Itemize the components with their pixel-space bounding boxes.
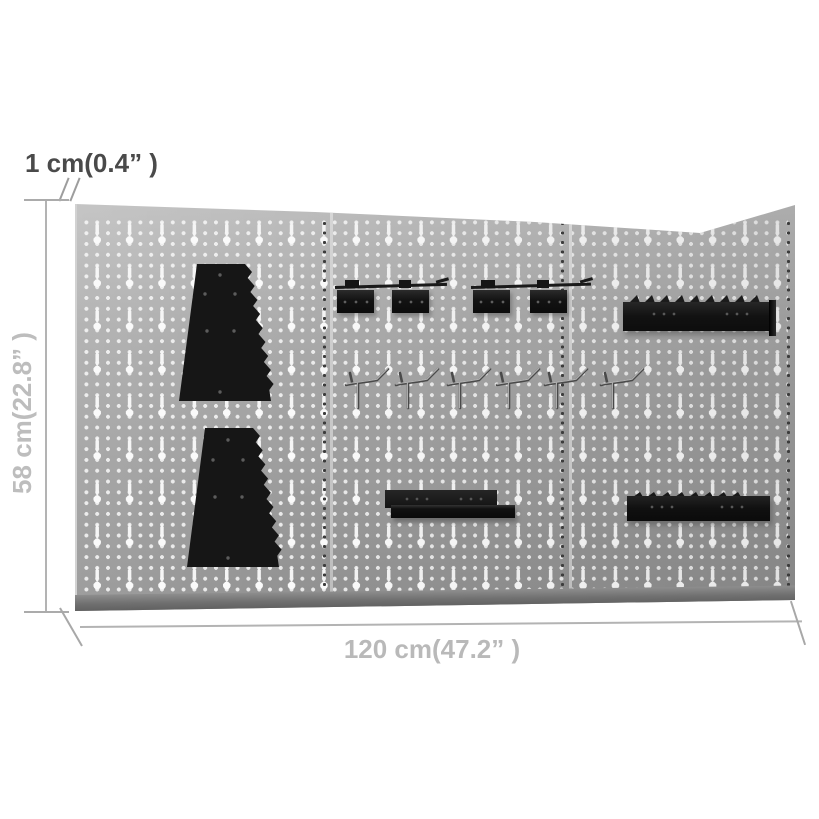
serrated-tool-rack-upper: [175, 261, 275, 405]
thickness-label: 1 cm(0.4” ): [25, 148, 158, 179]
clip-bracket: [337, 290, 374, 313]
clip-tab: [345, 280, 359, 288]
peg-hook: [343, 361, 391, 413]
shelf-bracket: [385, 490, 517, 522]
height-dimension-line: [45, 200, 47, 613]
rail-end-cap: [769, 300, 776, 336]
tool-clip-rail-right: [471, 279, 606, 315]
panel-seam-1: [330, 209, 333, 598]
tool-clip-rail-left: [335, 279, 470, 315]
width-label: 120 cm(47.2” ): [312, 634, 552, 665]
serrated-rail: [623, 293, 777, 337]
thickness-leader-line: [58, 178, 69, 202]
rail-body: [623, 302, 770, 331]
panel1-edge-holes: [321, 219, 328, 594]
clip-bracket: [530, 290, 567, 313]
thickness-leader-line: [69, 178, 80, 202]
clip-tab: [537, 280, 549, 288]
peg-hook: [393, 361, 441, 413]
width-tick-right: [790, 601, 806, 645]
clip-tab: [481, 280, 495, 288]
peg-hook: [494, 361, 542, 413]
clip-bracket: [473, 290, 510, 313]
product-dimension-diagram: 1 cm(0.4” ) 58 cm(22.8” ) 120 cm(47.2” ): [0, 0, 819, 819]
shelf-body: [627, 496, 770, 521]
height-label: 58 cm(22.8” ): [7, 293, 35, 533]
panel-left-edge: [75, 203, 77, 602]
height-tick-top: [24, 199, 69, 201]
pegboard-assembly: [75, 203, 795, 612]
serrated-shelf: [627, 491, 775, 523]
serrated-tool-rack-lower: [183, 425, 283, 571]
peg-hook: [445, 361, 493, 413]
peg-hook: [542, 361, 590, 413]
clip-bracket: [392, 290, 429, 313]
peg-hook: [598, 361, 646, 413]
shelf-ledge: [391, 505, 515, 518]
width-dimension-line: [80, 620, 802, 628]
clip-tab: [399, 280, 411, 288]
panel3-edge-holes: [785, 219, 792, 594]
